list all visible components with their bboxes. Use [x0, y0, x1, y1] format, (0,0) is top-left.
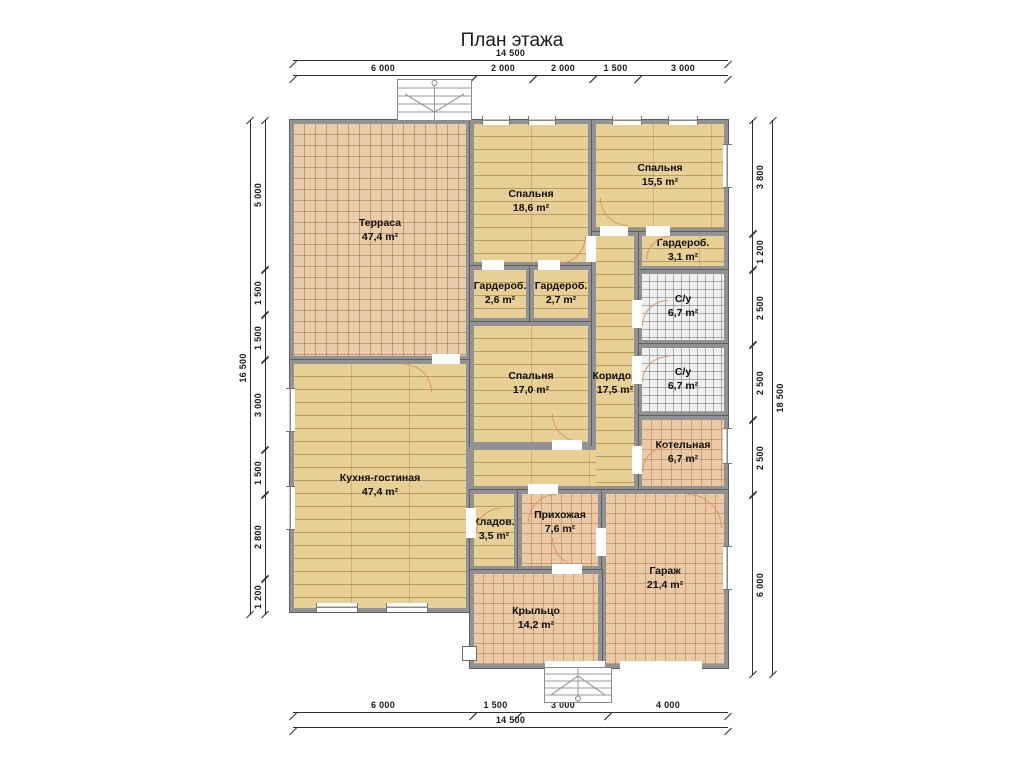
- room-label: Кухня-гостиная 47,4 m²: [340, 472, 420, 499]
- room-area: 47,4 m²: [362, 486, 398, 500]
- room-name: Гардероб.: [535, 280, 588, 294]
- room-label: Крыльцо 14,2 m²: [512, 605, 560, 632]
- door-opening: [632, 300, 642, 328]
- window: [723, 144, 732, 188]
- room-label: Терраса 47,4 m²: [359, 217, 401, 244]
- room-area: 6,7 m²: [668, 453, 698, 467]
- dim-left-seg-3: 1 500: [252, 315, 266, 360]
- dim-top-seg-4: 1 500: [593, 62, 638, 76]
- window: [316, 603, 358, 612]
- door-opening: [646, 226, 670, 236]
- room-name: Спальня: [508, 370, 553, 384]
- room-name: Терраса: [359, 217, 401, 231]
- dim-right-seg-1: 3 800: [752, 120, 766, 234]
- window: [723, 546, 732, 590]
- room-wardrobe-27: Гардероб. 2,7 m²: [530, 266, 592, 322]
- room-label: Гардероб. 2,7 m²: [535, 280, 588, 307]
- dim-right-seg-6: 6 000: [752, 495, 766, 675]
- room-area: 18,6 m²: [513, 202, 549, 216]
- room-area: 15,5 m²: [642, 176, 678, 190]
- room-name: Гардероб.: [474, 280, 527, 294]
- room-label: Коридор 17,5 m²: [592, 370, 637, 397]
- door-opening: [538, 260, 560, 270]
- dim-top-seg-3: 2 000: [533, 62, 593, 76]
- door-opening: [632, 356, 642, 384]
- room-area: 3,1 m²: [668, 251, 698, 265]
- dim-top-seg-5: 3 000: [638, 62, 728, 76]
- room-label: Спальня 15,5 m²: [637, 162, 682, 189]
- room-name: Спальня: [637, 162, 682, 176]
- room-label: С/у 6,7 m²: [668, 366, 698, 393]
- window: [528, 116, 556, 125]
- dim-left-seg-5: 1 500: [252, 450, 266, 495]
- window: [482, 116, 510, 125]
- dim-left-seg-6: 2 800: [252, 495, 266, 579]
- room-area: 17,0 m²: [513, 384, 549, 398]
- dim-top-seg-2: 2 000: [473, 62, 533, 76]
- dim-right-total: 18 500: [772, 120, 786, 675]
- room-name: Крыльцо: [512, 605, 560, 619]
- room-area: 14,2 m²: [518, 619, 554, 633]
- room-name: С/у: [675, 366, 691, 380]
- room-porch: Крыльцо 14,2 m²: [470, 570, 602, 668]
- room-name: Коридор: [592, 370, 637, 384]
- room-label: С/у 6,7 m²: [668, 293, 698, 320]
- room-area: 6,7 m²: [668, 307, 698, 321]
- door-opening: [552, 564, 582, 574]
- window: [612, 116, 642, 125]
- floor-plan-canvas: План этажа 14 500 6 000 2 000 2 000 1 50…: [0, 0, 1024, 768]
- door-opening: [600, 226, 628, 236]
- dim-bottom-seg-4: 4 000: [608, 699, 728, 713]
- room-label: Спальня 17,0 m²: [508, 370, 553, 397]
- room-area: 21,4 m²: [647, 579, 683, 593]
- window: [386, 603, 428, 612]
- room-area: 6,7 m²: [668, 380, 698, 394]
- door-opening: [466, 508, 476, 538]
- room-area: 2,6 m²: [485, 294, 515, 308]
- door-opening: [528, 484, 558, 494]
- window: [723, 428, 732, 464]
- room-area: 47,4 m²: [362, 231, 398, 245]
- room-terrace: Терраса 47,4 m²: [290, 120, 470, 360]
- door-opening: [632, 446, 642, 474]
- door-opening: [432, 354, 460, 364]
- dim-right-seg-2: 1 200: [752, 234, 766, 270]
- room-area: 7,6 m²: [545, 523, 575, 537]
- dim-bottom-seg-2: 1 500: [473, 699, 518, 713]
- entrance-stairs-top: [397, 79, 472, 121]
- dim-left-seg-7: 1 200: [252, 579, 266, 615]
- room-area: 17,5 m²: [597, 384, 633, 398]
- door-opening: [596, 528, 606, 556]
- room-label: Спальня 18,6 m²: [508, 188, 553, 215]
- window: [286, 388, 295, 432]
- room-name: С/у: [675, 293, 691, 307]
- entrance-stairs-bottom: [544, 667, 612, 703]
- door-opening: [586, 236, 596, 262]
- door-opening: [482, 260, 504, 270]
- window: [286, 486, 295, 530]
- room-area: 3,5 m²: [479, 530, 509, 544]
- room-label: Гараж 21,4 m²: [647, 565, 683, 592]
- room-name: Спальня: [508, 188, 553, 202]
- room-name: Гараж: [649, 565, 680, 579]
- door-opening: [552, 440, 582, 450]
- dim-right-seg-5: 2 500: [752, 420, 766, 495]
- dim-bottom-seg-1: 6 000: [293, 699, 473, 713]
- dim-left-seg-2: 1 500: [252, 270, 266, 315]
- dim-top-total: 14 500: [293, 47, 728, 61]
- room-name: Кухня-гостиная: [340, 472, 420, 486]
- dim-bottom-total: 14 500: [293, 714, 728, 728]
- dim-left-seg-1: 5 000: [252, 120, 266, 270]
- room-label: Гардероб. 2,6 m²: [474, 280, 527, 307]
- room-wardrobe-26: Гардероб. 2,6 m²: [470, 266, 530, 322]
- dim-right-seg-4: 2 500: [752, 345, 766, 420]
- dim-top-seg-1: 6 000: [293, 62, 473, 76]
- porch-column: [462, 646, 477, 661]
- dim-right-seg-3: 2 500: [752, 270, 766, 345]
- room-kitchen-living: Кухня-гостиная 47,4 m²: [290, 360, 470, 612]
- window: [668, 116, 698, 125]
- room-area: 2,7 m²: [546, 294, 576, 308]
- dim-left-seg-4: 3 000: [252, 360, 266, 450]
- garage-door-opening: [620, 661, 702, 670]
- dim-left-total: 16 500: [237, 120, 251, 615]
